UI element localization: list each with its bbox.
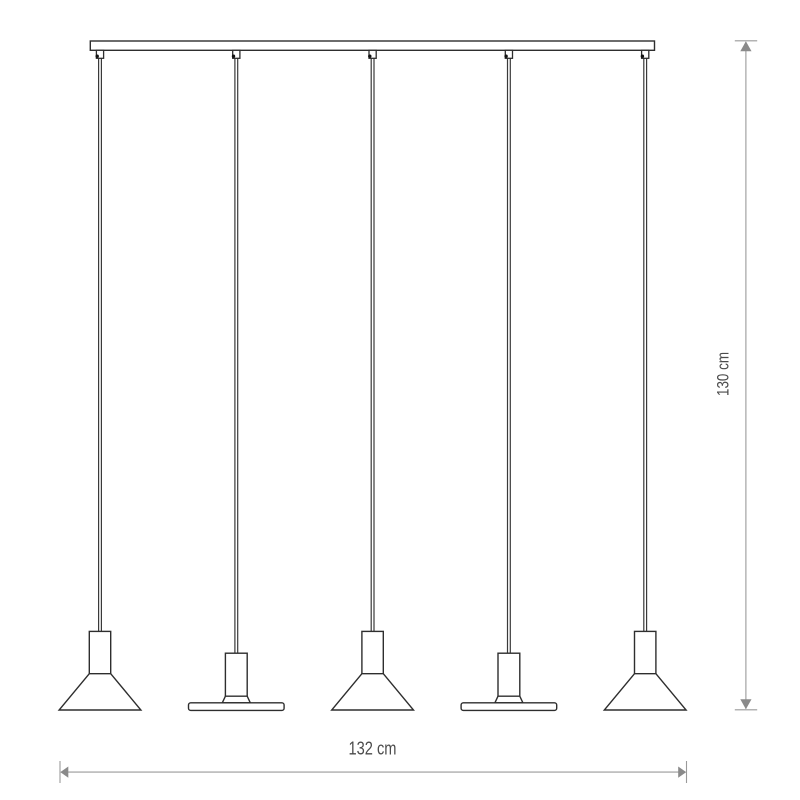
svg-text:132 cm: 132 cm: [349, 739, 397, 759]
svg-text:130 cm: 130 cm: [715, 352, 733, 396]
